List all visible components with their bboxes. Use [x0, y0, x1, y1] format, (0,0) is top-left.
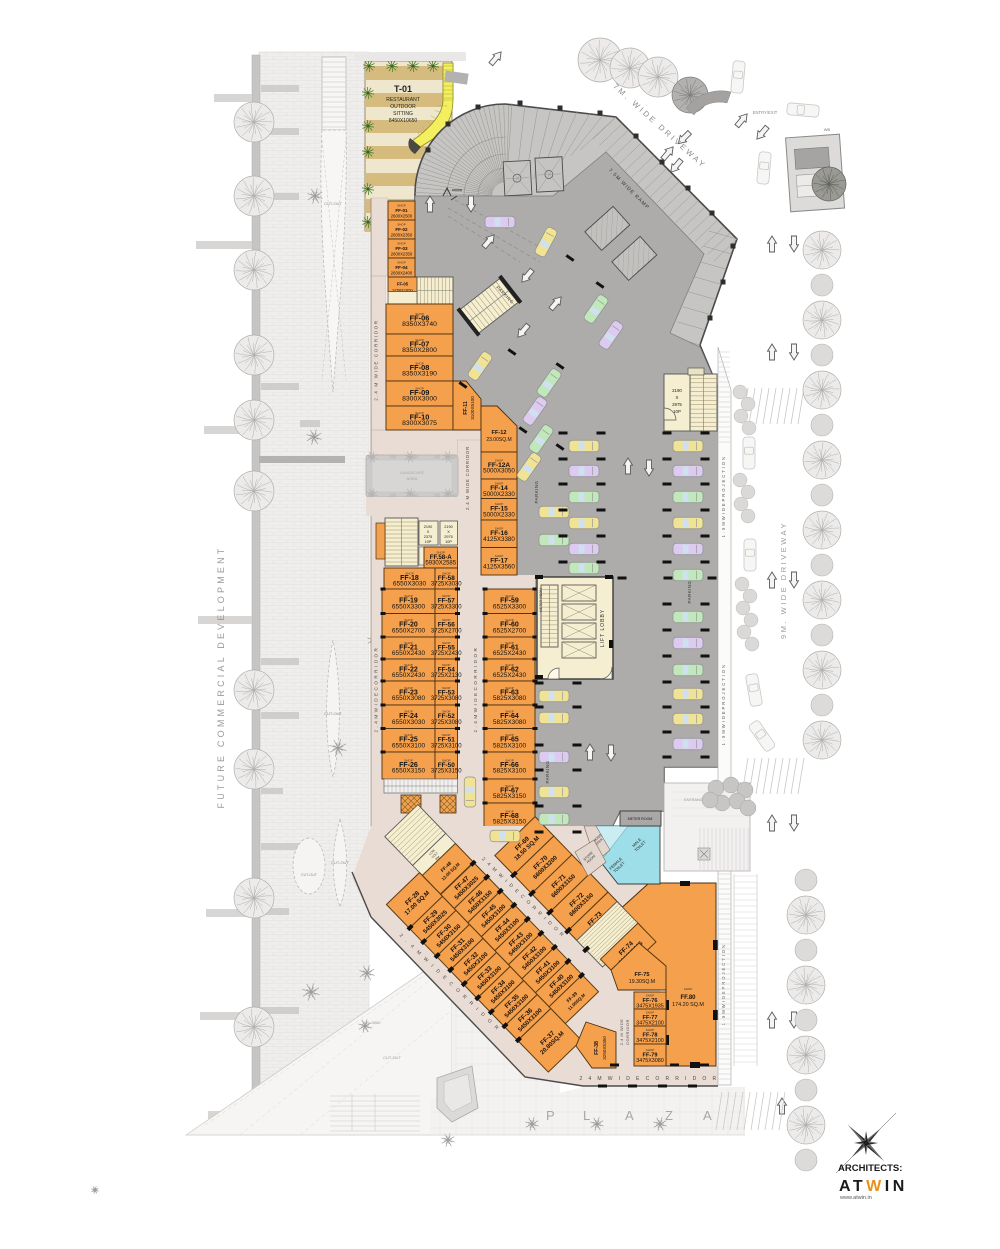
svg-text:ARCHITECTS:: ARCHITECTS:	[838, 1163, 902, 1174]
svg-text:2600X2350: 2600X2350	[391, 252, 413, 257]
svg-text:19.30SQ.M: 19.30SQ.M	[629, 979, 655, 985]
svg-text:CUT-OUT: CUT-OUT	[383, 1055, 401, 1060]
svg-text:2975: 2975	[444, 535, 452, 539]
svg-text:3475X2100: 3475X2100	[636, 1038, 664, 1044]
svg-text:T-01: T-01	[394, 84, 412, 94]
svg-text:8300X3000: 8300X3000	[402, 396, 437, 403]
svg-text:3725X3080: 3725X3080	[431, 720, 462, 726]
svg-text:PARKING: PARKING	[534, 480, 539, 503]
svg-text:SHOP: SHOP	[646, 1028, 655, 1032]
svg-text:RESTAURANT: RESTAURANT	[386, 97, 420, 103]
svg-text:1 . 5 M W I D E P R O J E C T: 1 . 5 M W I D E P R O J E C T I O N	[721, 457, 726, 538]
svg-text:2375: 2375	[424, 535, 432, 539]
svg-text:5825X3150: 5825X3150	[493, 793, 527, 800]
svg-text:FF-01: FF-01	[395, 208, 408, 213]
svg-text:3250X5350: 3250X5350	[602, 1036, 607, 1060]
svg-text:5930X2585: 5930X2585	[425, 561, 456, 567]
svg-text:A: A	[703, 1108, 712, 1123]
svg-text:5000X2330: 5000X2330	[483, 511, 515, 518]
svg-text:FF-05: FF-05	[397, 282, 409, 287]
svg-text:SHOP: SHOP	[646, 993, 655, 997]
svg-text:CUT-OUT: CUT-OUT	[324, 711, 342, 716]
svg-text:6550X2430: 6550X2430	[392, 672, 426, 679]
svg-text:5825X3100: 5825X3100	[493, 742, 527, 749]
svg-text:6525X2430: 6525X2430	[493, 650, 527, 657]
svg-text:SHOP: SHOP	[397, 203, 406, 207]
svg-text:5000X3050: 5000X3050	[483, 468, 515, 475]
svg-text:3100X5100: 3100X5100	[470, 396, 475, 420]
svg-text:1 . 5 M W I D E P R O J E C T: 1 . 5 M W I D E P R O J E C T I O N	[721, 945, 726, 1026]
svg-text:3725X3300: 3725X3300	[431, 604, 462, 610]
svg-text:SHOP: SHOP	[397, 260, 406, 264]
svg-text:X: X	[676, 395, 679, 400]
svg-text:L: L	[583, 1108, 590, 1123]
svg-text:6550X3030: 6550X3030	[393, 581, 427, 588]
svg-text:X: X	[447, 530, 450, 534]
svg-text:METER ROOM: METER ROOM	[628, 817, 653, 821]
svg-text:2600X2400: 2600X2400	[391, 271, 413, 276]
svg-text:2190: 2190	[672, 388, 682, 393]
svg-text:10P: 10P	[425, 540, 432, 544]
svg-text:LIFT LOBBY: LIFT LOBBY	[600, 609, 606, 647]
svg-text:23.00SQ.M: 23.00SQ.M	[486, 437, 511, 443]
svg-text:FF-02: FF-02	[395, 227, 408, 232]
svg-text:8300X3075: 8300X3075	[402, 420, 437, 427]
svg-text:CUT-OUT: CUT-OUT	[301, 873, 318, 877]
svg-text:2.4 M WIDE CORRIDOR: 2.4 M WIDE CORRIDOR	[374, 319, 379, 400]
svg-text:3725X2700: 3725X2700	[431, 628, 462, 634]
svg-text:SHOP: SHOP	[397, 241, 406, 245]
svg-text:3725X3100: 3725X3100	[431, 743, 462, 749]
svg-text:174.20 SQ.M: 174.20 SQ.M	[672, 1002, 704, 1008]
svg-text:FF-38: FF-38	[594, 1041, 600, 1055]
svg-text:CUT-OUT: CUT-OUT	[324, 201, 342, 206]
svg-text:6550X3030: 6550X3030	[392, 719, 426, 726]
svg-text:1 . 5 M W I D E P R O J E C T: 1 . 5 M W I D E P R O J E C T I O N	[721, 665, 726, 746]
svg-text:CUT-OUT: CUT-OUT	[331, 860, 349, 865]
svg-text:3725X2430: 3725X2430	[431, 651, 462, 657]
svg-text:5825X3080: 5825X3080	[493, 719, 527, 726]
svg-text:3475X3080: 3475X3080	[636, 1058, 664, 1064]
svg-text:SHOP: SHOP	[646, 1048, 655, 1052]
svg-text:6525X2430: 6525X2430	[493, 672, 527, 679]
svg-text:2975: 2975	[672, 402, 682, 407]
svg-text:4125X3560: 4125X3560	[483, 563, 515, 570]
svg-text:3725X3150: 3725X3150	[431, 769, 462, 775]
svg-text:8350X3190: 8350X3190	[402, 371, 437, 378]
svg-text:10P: 10P	[445, 540, 452, 544]
svg-text:FF.80: FF.80	[680, 995, 696, 1001]
svg-text:2600X2350: 2600X2350	[391, 233, 413, 238]
svg-text:FF-03: FF-03	[395, 246, 408, 251]
svg-text:SITTING: SITTING	[393, 111, 413, 117]
svg-text:8350X3740: 8350X3740	[402, 321, 437, 328]
svg-text:METER ROOM: METER ROOM	[539, 588, 543, 612]
svg-text:5000X2330: 5000X2330	[483, 491, 515, 498]
svg-text:P: P	[546, 1108, 555, 1123]
svg-text:2190: 2190	[424, 525, 432, 529]
svg-text:2.4 M WIDE: 2.4 M WIDE	[619, 1019, 624, 1046]
svg-text:X: X	[427, 530, 430, 534]
svg-text:6550X3100: 6550X3100	[392, 742, 426, 749]
svg-text:www.atwin.in: www.atwin.in	[839, 1195, 872, 1201]
svg-text:SHOP: SHOP	[646, 1010, 655, 1014]
svg-text:PARKING: PARKING	[687, 580, 692, 603]
svg-text:5825X3150: 5825X3150	[493, 819, 527, 826]
svg-text:2 4 M W I D E C O R R I D O: 2 4 M W I D E C O R R I D O R	[579, 1076, 718, 1082]
svg-text:2190: 2190	[444, 525, 452, 529]
svg-text:FUTURE COMMERCIAL DEVELOPMEN: FUTURE COMMERCIAL DEVELOPMENT	[216, 546, 226, 809]
svg-text:FF-11: FF-11	[463, 401, 469, 415]
svg-text:FF-12: FF-12	[492, 430, 507, 436]
svg-text:6550X2430: 6550X2430	[392, 650, 426, 657]
svg-text:6525X3300: 6525X3300	[493, 603, 527, 610]
svg-text:3725X2130: 3725X2130	[431, 673, 462, 679]
svg-text:AREA: AREA	[407, 476, 418, 481]
svg-text:8450X10650: 8450X10650	[389, 118, 418, 124]
svg-text:A: A	[625, 1108, 634, 1123]
svg-text:5825X3080: 5825X3080	[493, 695, 527, 702]
svg-text:3725X3080: 3725X3080	[431, 696, 462, 702]
svg-text:2.4 M WIDE CORRIDOR: 2.4 M WIDE CORRIDOR	[465, 446, 470, 510]
svg-text:OUTDOOR: OUTDOOR	[390, 104, 416, 110]
svg-text:2600X2500: 2600X2500	[391, 214, 413, 219]
svg-text:6550X3150: 6550X3150	[392, 768, 426, 775]
svg-text:6550X3080: 6550X3080	[392, 695, 426, 702]
svg-text:FF-75: FF-75	[635, 972, 650, 978]
svg-text:8350X2800: 8350X2800	[402, 347, 437, 354]
svg-text:6525X2700: 6525X2700	[493, 627, 527, 634]
svg-text:FF-04: FF-04	[395, 265, 408, 270]
svg-text:4125X3380: 4125X3380	[483, 536, 515, 543]
svg-text:WB: WB	[824, 127, 831, 132]
svg-text:SHOP: SHOP	[684, 987, 693, 991]
svg-text:3725X3030: 3725X3030	[431, 582, 462, 588]
svg-text:SHOP: SHOP	[397, 222, 406, 226]
svg-text:9M. WIDE DRIVEWAY: 9M. WIDE DRIVEWAY	[779, 521, 788, 639]
svg-text:6550X3300: 6550X3300	[392, 603, 426, 610]
svg-text:2 . 4 M W I D E C O R R I D O: 2 . 4 M W I D E C O R R I D O R	[374, 647, 379, 732]
svg-text:PARKING: PARKING	[545, 760, 550, 783]
svg-text:CORRIDOR: CORRIDOR	[625, 1019, 630, 1045]
svg-text:6550X2700: 6550X2700	[392, 627, 426, 634]
svg-text:ENTRY/EXIT: ENTRY/EXIT	[753, 110, 778, 115]
svg-text:LANDSCAPE: LANDSCAPE	[400, 470, 425, 475]
svg-text:5825X3100: 5825X3100	[493, 768, 527, 775]
svg-text:2 . 4 M W I D E C O R R I D O: 2 . 4 M W I D E C O R R I D O R	[473, 647, 478, 732]
svg-text:ATWIN: ATWIN	[839, 1178, 908, 1195]
